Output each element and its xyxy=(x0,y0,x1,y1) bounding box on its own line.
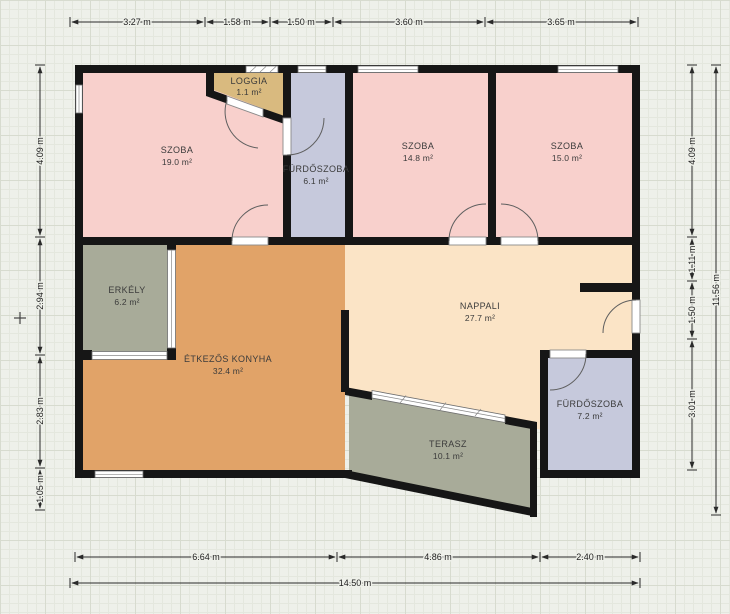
dim-right-0: 4.09 m xyxy=(687,137,697,165)
window-furdoszoba-6[interactable] xyxy=(298,66,326,73)
area-erkely: 6.2 m² xyxy=(114,297,139,307)
label-furdoszoba-7: FÜRDŐSZOBA xyxy=(557,399,624,409)
area-etkezos-konyha: 32.4 m² xyxy=(213,366,243,376)
window-erkely-bottom[interactable] xyxy=(92,352,167,360)
floor-plan-page: SZOBA 19.0 m² LOGGIA 1.1 m² FÜRDŐSZOBA 6… xyxy=(0,0,730,614)
area-szoba-14: 14.8 m² xyxy=(403,153,433,163)
origin-marker xyxy=(14,312,26,324)
dim-right-1: 1.11 m xyxy=(687,246,697,273)
dim-bottom-1: 4.86 m xyxy=(424,552,452,562)
room-furdoszoba-6[interactable] xyxy=(291,73,345,245)
dim-left-1: 2.94 m xyxy=(35,282,45,310)
label-furdoszoba-6: FÜRDŐSZOBA xyxy=(283,164,350,174)
dim-right-total: 11.56 m xyxy=(711,274,721,306)
dim-left-0: 4.09 m xyxy=(35,137,45,165)
label-szoba-15: SZOBA xyxy=(551,141,584,151)
dim-left-2: 2.83 m xyxy=(35,397,45,425)
label-nappali: NAPPALI xyxy=(460,301,500,311)
dim-right-2: 1.50 m xyxy=(687,296,697,324)
dim-right-3: 3.01 m xyxy=(687,390,697,418)
label-loggia: LOGGIA xyxy=(231,76,268,86)
dim-left-3: 1.05 m xyxy=(35,475,45,503)
label-terasz: TERASZ xyxy=(429,439,467,449)
window-bottom-wall[interactable] xyxy=(95,471,143,478)
dim-bottom-total: 14.50 m xyxy=(339,578,372,588)
dim-top-0: 3.27 m xyxy=(123,17,151,27)
dim-bottom-2: 2.40 m xyxy=(576,552,604,562)
area-furdoszoba-7: 7.2 m² xyxy=(577,411,602,421)
window-erkely-right[interactable] xyxy=(168,250,176,348)
area-szoba-15: 15.0 m² xyxy=(552,153,582,163)
rooms xyxy=(83,73,632,514)
area-loggia: 1.1 m² xyxy=(236,87,261,97)
window-szoba-14[interactable] xyxy=(358,66,418,73)
label-erkely: ERKÉLY xyxy=(108,285,145,295)
window-szoba-15[interactable] xyxy=(558,66,618,73)
dim-top-1: 1.58 m xyxy=(223,17,251,27)
floor-plan-canvas: SZOBA 19.0 m² LOGGIA 1.1 m² FÜRDŐSZOBA 6… xyxy=(0,0,730,614)
area-nappali: 27.7 m² xyxy=(465,313,495,323)
dim-top-4: 3.65 m xyxy=(547,17,575,27)
area-szoba-19: 19.0 m² xyxy=(162,157,192,167)
area-terasz: 10.1 m² xyxy=(433,451,463,461)
window-left-wall[interactable] xyxy=(76,85,83,113)
label-szoba-14: SZOBA xyxy=(402,141,435,151)
dim-bottom-0: 6.64 m xyxy=(192,552,220,562)
dim-top-2: 1.50 m xyxy=(287,17,315,27)
area-furdoszoba-6: 6.1 m² xyxy=(303,176,328,186)
dim-top-3: 3.60 m xyxy=(395,17,423,27)
window-loggia[interactable] xyxy=(246,66,278,73)
label-etkezos-konyha: ÉTKEZŐS KONYHA xyxy=(184,354,272,364)
label-szoba-19: SZOBA xyxy=(161,145,194,155)
